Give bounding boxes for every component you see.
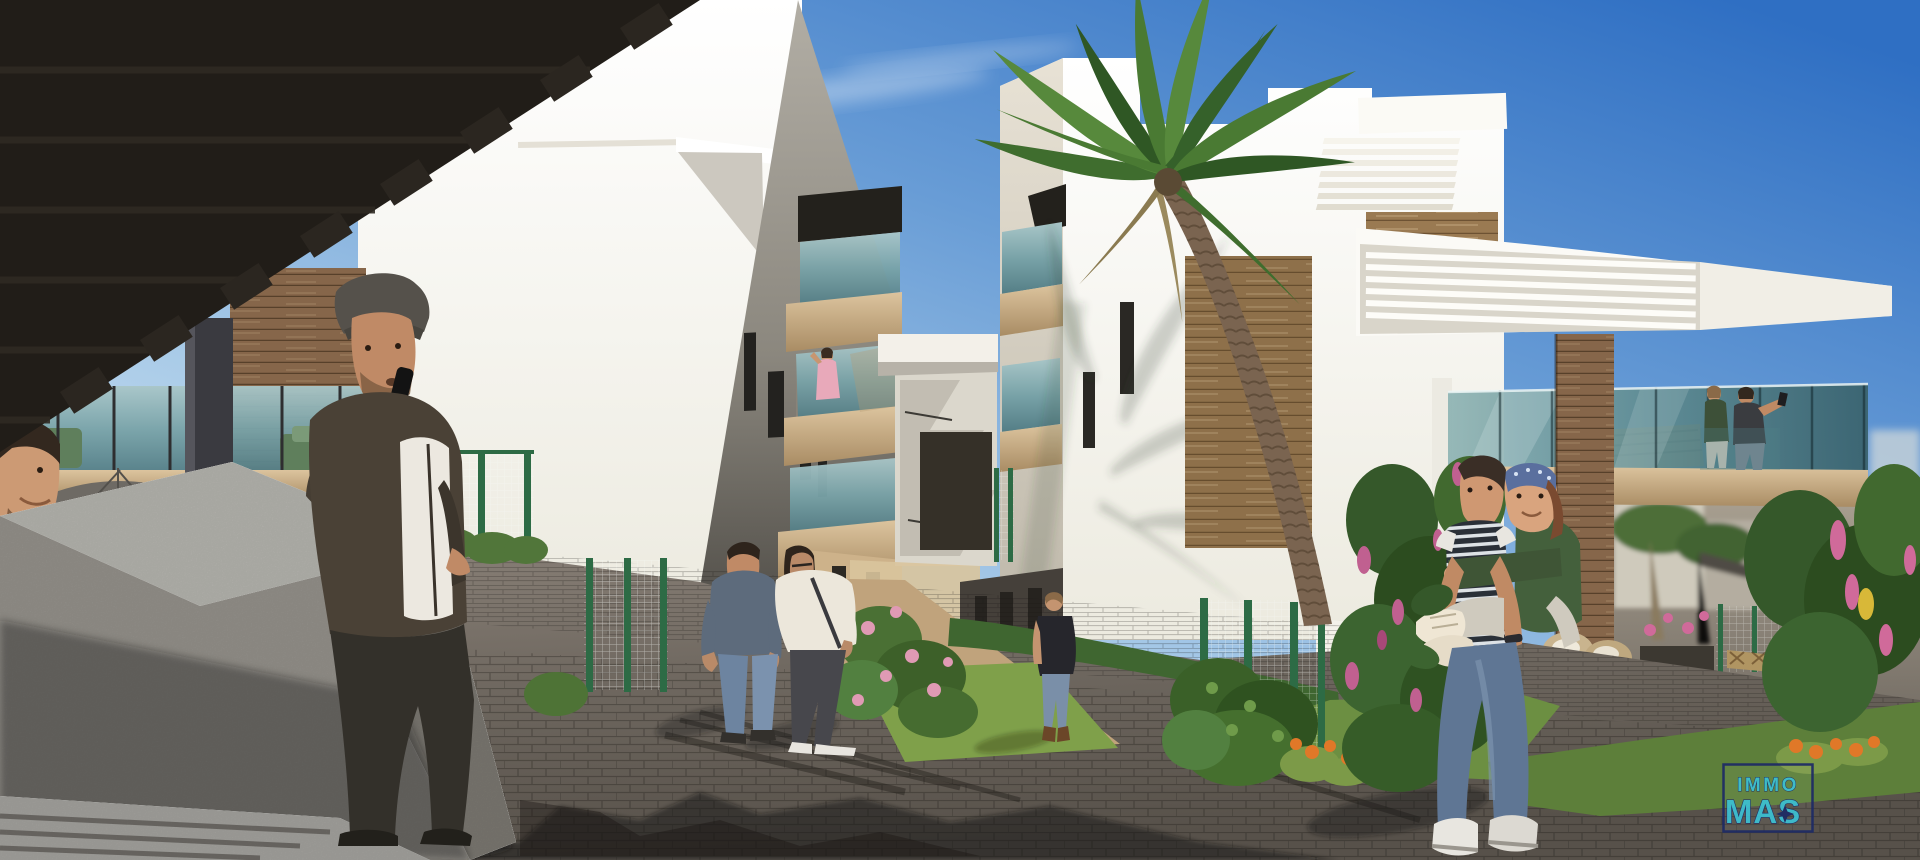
- immo-mas-watermark: IMMO MAS: [1724, 765, 1813, 832]
- shrub: [524, 672, 588, 716]
- sneaker: [788, 742, 812, 754]
- boot: [1057, 726, 1070, 742]
- logo-line2: MAS: [1725, 793, 1801, 830]
- bridge-slab: [878, 334, 998, 362]
- architectural-render: IMMO MAS: [0, 0, 1920, 860]
- yellow-flower: [1858, 588, 1874, 620]
- shoe: [720, 732, 746, 744]
- white-tshirt: [400, 437, 453, 620]
- balcony-level-3: [786, 186, 902, 352]
- fence-corridor: [994, 468, 1014, 562]
- boot: [1042, 726, 1056, 742]
- window-slot: [1083, 372, 1095, 448]
- render-canvas: IMMO MAS: [0, 0, 1920, 860]
- dark-passage-opening: [920, 432, 992, 550]
- roof-fascia: [1358, 93, 1507, 134]
- shoe: [750, 730, 776, 741]
